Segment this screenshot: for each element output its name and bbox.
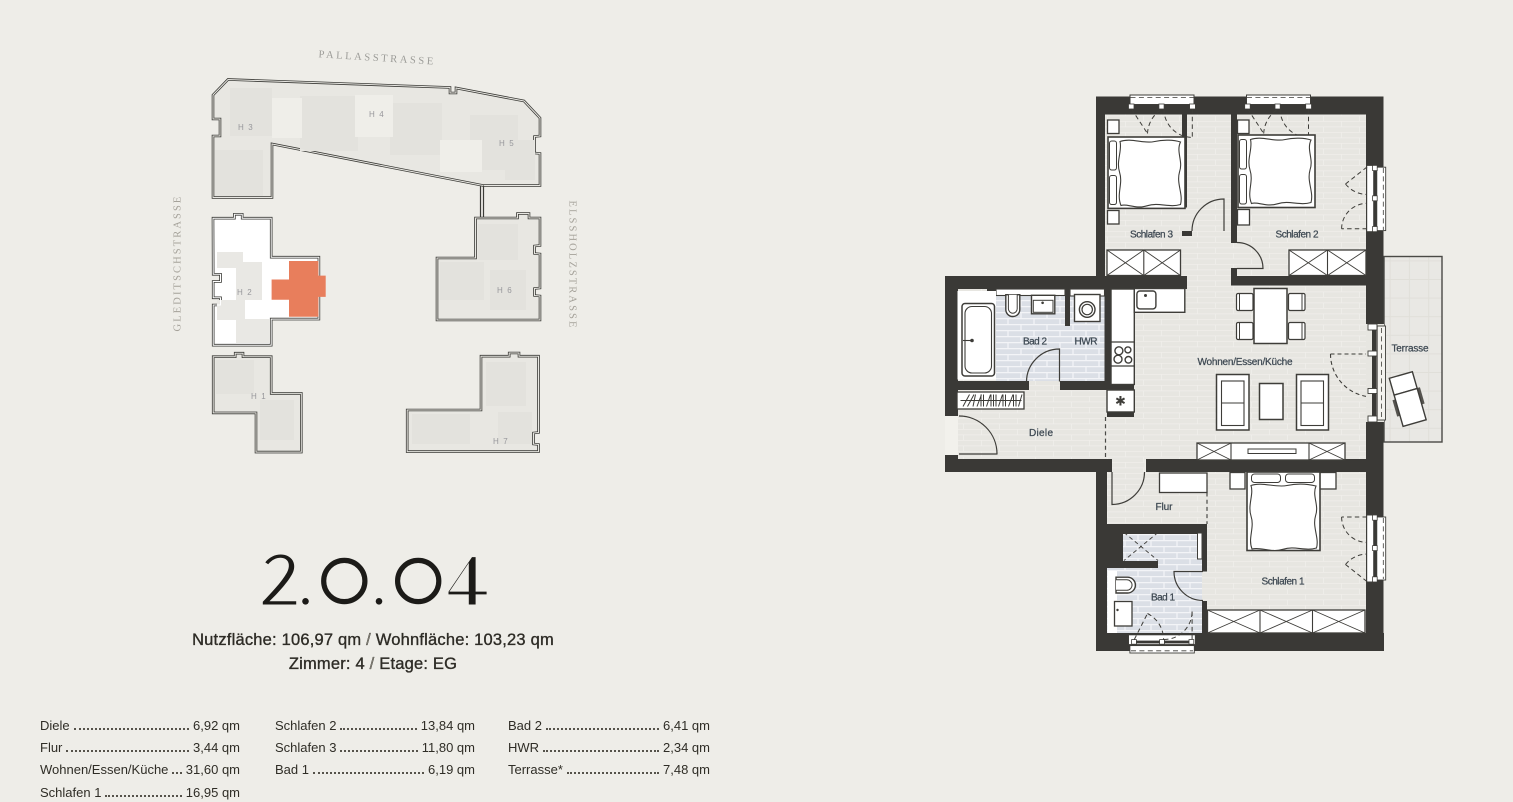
svg-text:✱: ✱ [1115,394,1126,409]
svg-text:GLEDITSCHSTRASSE: GLEDITSCHSTRASSE [173,195,184,332]
svg-text:H 5: H 5 [499,139,515,148]
svg-text:Bad 2: Bad 2 [1023,337,1047,348]
svg-text:HWR: HWR [1075,337,1098,348]
svg-text:H 2: H 2 [237,288,253,297]
svg-text:Diele: Diele [1029,428,1053,439]
svg-text:H 3: H 3 [238,123,254,132]
svg-text:Terrasse: Terrasse [1392,344,1429,355]
svg-text:H 4: H 4 [369,110,385,119]
svg-text:Wohnen/Essen/Küche: Wohnen/Essen/Küche [1198,357,1293,368]
svg-text:H 1: H 1 [251,392,267,401]
svg-text:Flur: Flur [1156,502,1174,513]
svg-text:Schlafen 2: Schlafen 2 [1276,230,1319,241]
svg-text:Bad 1: Bad 1 [1151,593,1175,604]
svg-text:H 6: H 6 [497,286,513,295]
svg-text:ELSSHOLZSTRASSE: ELSSHOLZSTRASSE [567,201,578,330]
svg-text:Schlafen 3: Schlafen 3 [1130,230,1173,241]
svg-text:Schlafen 1: Schlafen 1 [1262,577,1305,588]
svg-text:H 7: H 7 [493,437,509,446]
svg-text:PALLASSTRASSE: PALLASSTRASSE [318,49,436,67]
